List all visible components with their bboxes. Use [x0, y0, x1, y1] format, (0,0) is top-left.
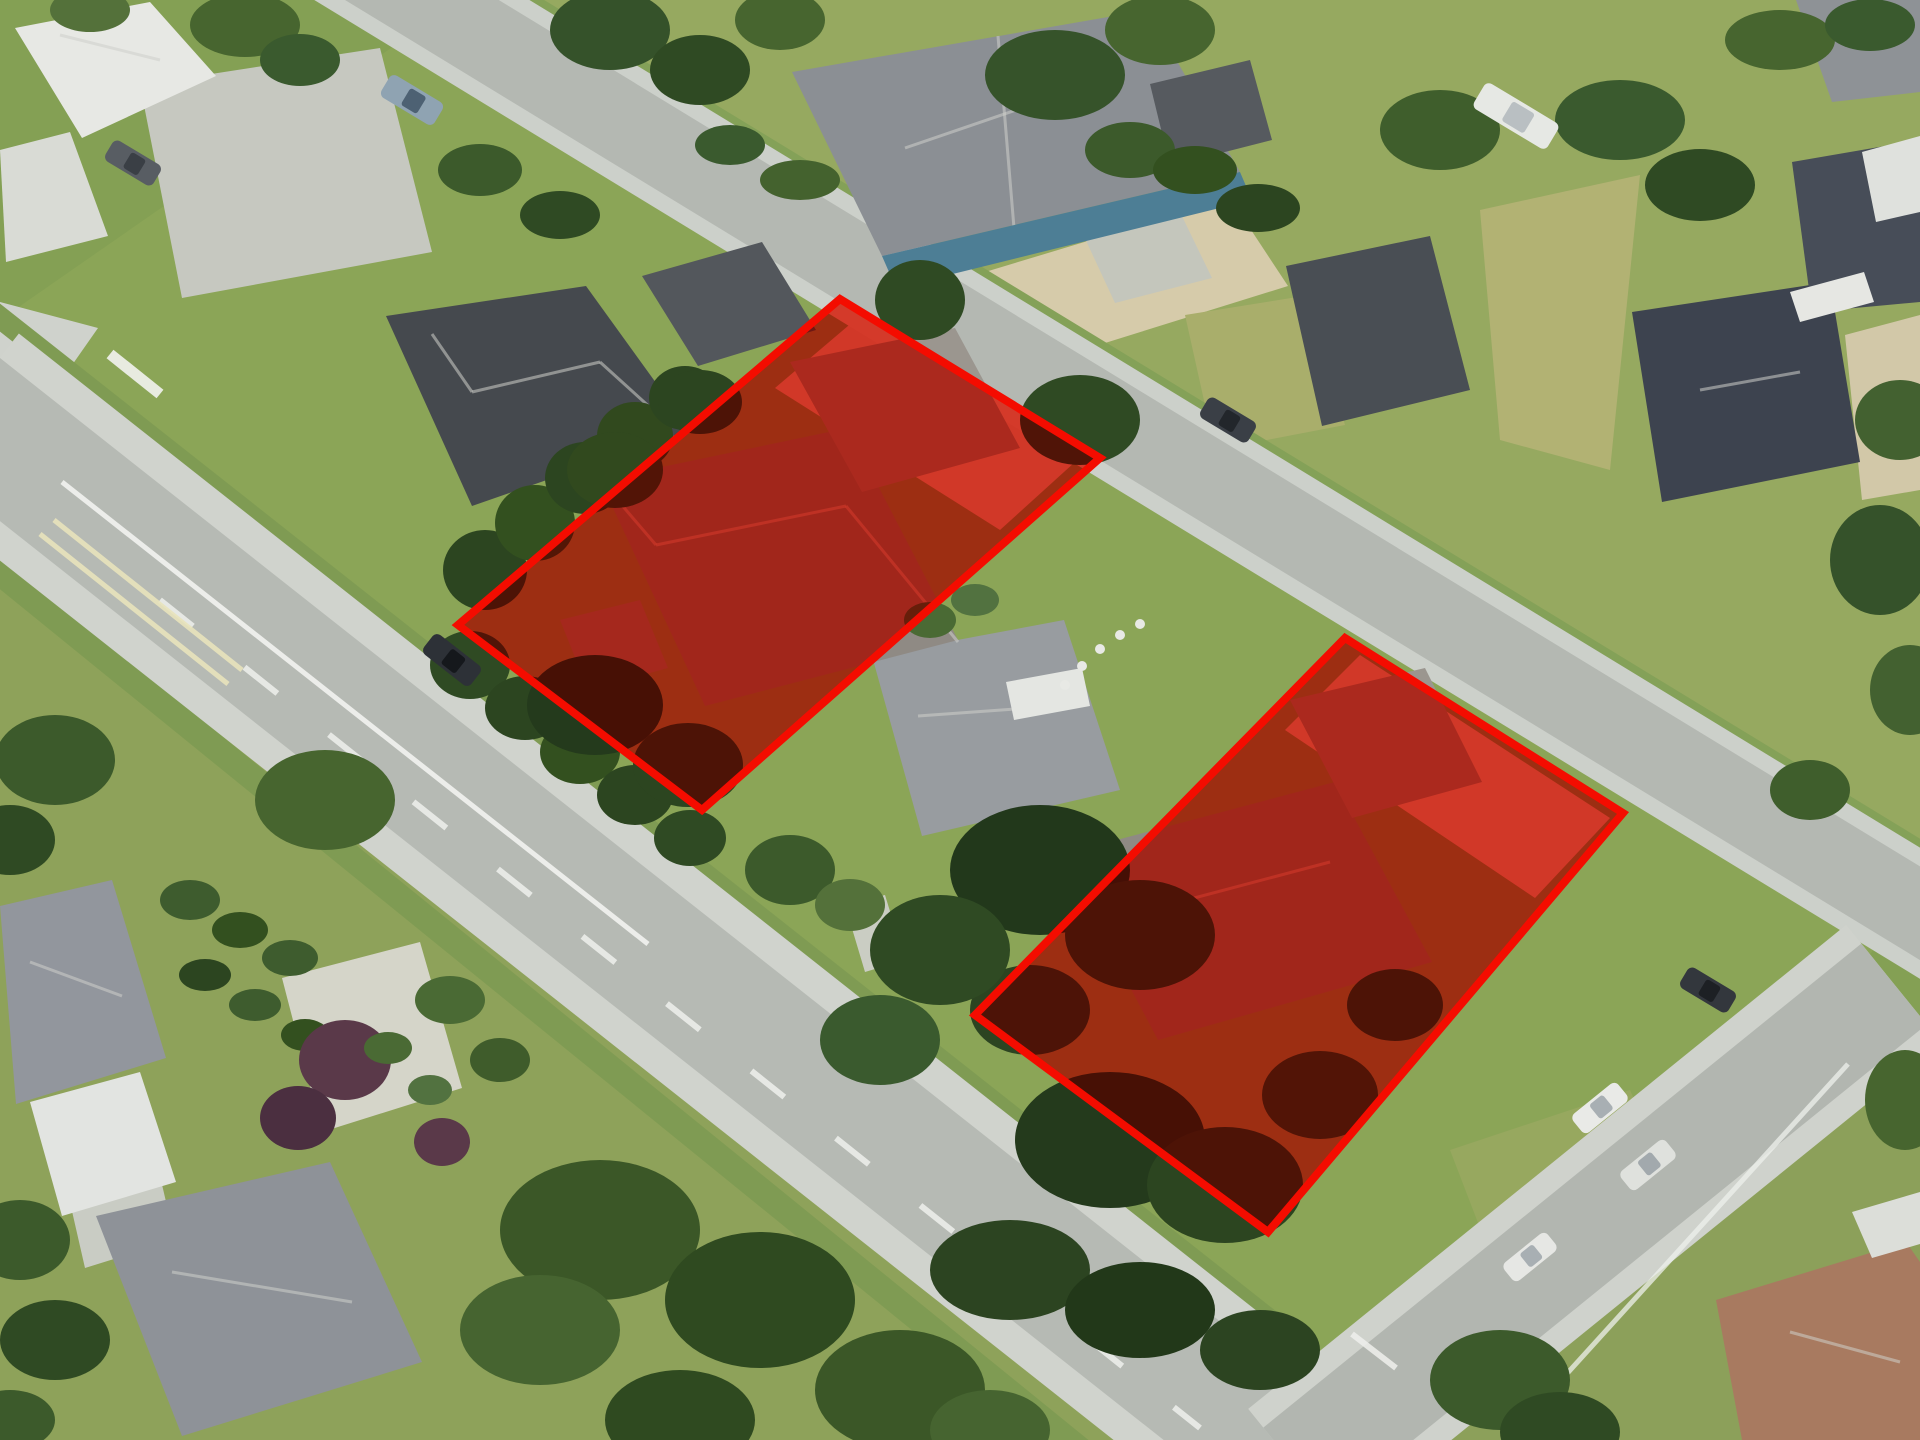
tree-70 [415, 976, 485, 1024]
tree-10 [985, 30, 1125, 120]
tree-62 [179, 959, 231, 991]
tree-55 [1200, 1310, 1320, 1390]
tree-51 [870, 895, 1010, 1005]
stepping-stone-1 [1077, 661, 1087, 671]
stepping-stone-4 [1135, 619, 1145, 629]
tree-60 [212, 912, 268, 948]
tree-23 [1770, 760, 1850, 820]
tree-6 [650, 35, 750, 105]
tree-71 [470, 1038, 530, 1082]
tree-69 [408, 1075, 452, 1105]
stepping-stone-3 [1115, 630, 1125, 640]
tree-17 [1645, 149, 1755, 221]
tree-58 [255, 750, 395, 850]
tree-39 [951, 584, 999, 616]
tree-52 [820, 995, 940, 1085]
tree-4 [520, 191, 600, 239]
tree-14 [1216, 184, 1300, 232]
tree-67 [414, 1118, 470, 1166]
tree-9 [760, 160, 840, 200]
tree-78 [460, 1275, 620, 1385]
aerial-satellite-image [0, 0, 1920, 1440]
tree-66 [260, 1086, 336, 1150]
tree-63 [229, 989, 281, 1021]
tree-8 [695, 125, 765, 165]
tree-68 [364, 1032, 412, 1064]
tree-59 [160, 880, 220, 920]
tree-13 [1153, 146, 1237, 194]
tree-35 [654, 810, 726, 866]
tree-19 [1825, 0, 1915, 51]
aerial-map-viewport [0, 0, 1920, 1440]
tree-16 [1555, 80, 1685, 160]
tree-54 [1065, 1262, 1215, 1358]
tree-61 [262, 940, 318, 976]
tree-73 [0, 1300, 110, 1380]
tree-3 [438, 144, 522, 196]
tree-76 [665, 1232, 855, 1368]
tree-37 [815, 879, 885, 931]
tree-1 [260, 34, 340, 86]
tree-18 [1725, 10, 1835, 70]
stepping-stone-2 [1095, 644, 1105, 654]
tree-56 [0, 715, 115, 805]
stepping-stone-0 [1060, 680, 1070, 690]
